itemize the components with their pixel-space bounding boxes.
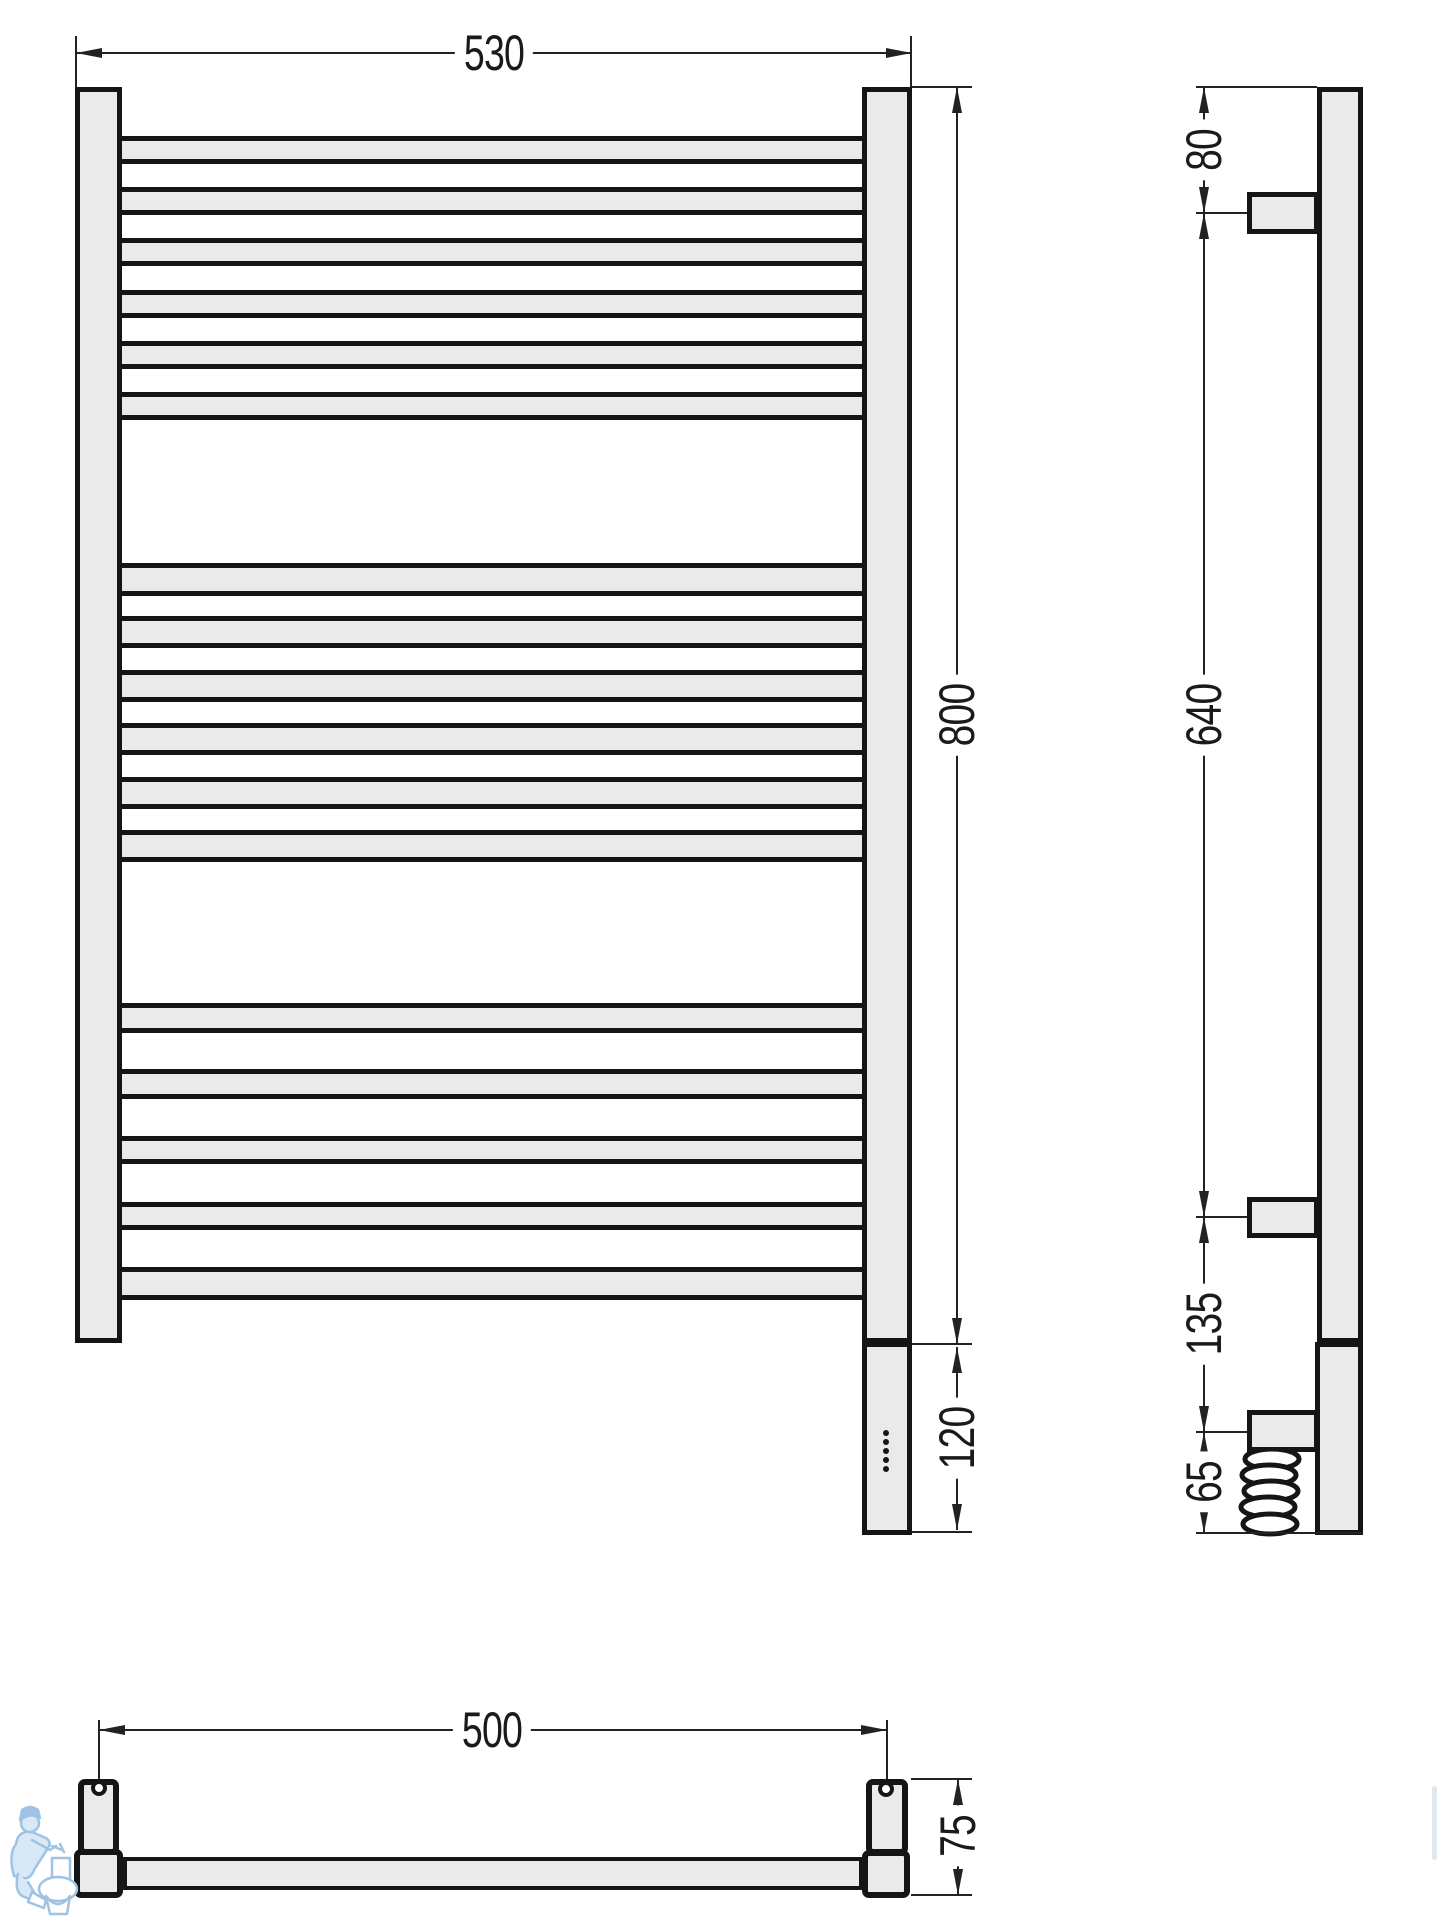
arrowhead-down bbox=[953, 1869, 963, 1895]
arrowhead-left bbox=[76, 48, 102, 58]
dim-mount-depth: 75 bbox=[932, 1806, 984, 1867]
ext-line bbox=[1196, 1532, 1363, 1534]
arrowhead-down bbox=[952, 1504, 962, 1530]
arrowhead-up bbox=[1199, 1217, 1209, 1243]
side-wall-bracket-top bbox=[1247, 192, 1319, 234]
rung bbox=[116, 1267, 868, 1300]
rung bbox=[116, 136, 868, 164]
side-post bbox=[1317, 87, 1363, 1343]
rung bbox=[116, 187, 868, 215]
arrowhead-right bbox=[861, 1725, 887, 1735]
rung bbox=[116, 1069, 868, 1099]
arrowhead-down bbox=[1199, 187, 1209, 213]
arrowhead-down bbox=[952, 1318, 962, 1344]
dim-side-bracket-span: 640 bbox=[1178, 674, 1230, 755]
mount-hole-left bbox=[91, 1780, 107, 1796]
rung bbox=[116, 290, 868, 318]
dim-side-cable-to-bottom: 65 bbox=[1178, 1452, 1230, 1513]
rung bbox=[116, 341, 868, 369]
left-post bbox=[75, 87, 122, 1343]
dim-mount-span: 500 bbox=[453, 1704, 531, 1756]
arrowhead-down bbox=[1199, 1191, 1209, 1217]
dim-front-height: 800 bbox=[931, 674, 983, 755]
arrowhead-up bbox=[952, 87, 962, 113]
indicator-dot bbox=[883, 1466, 889, 1472]
rung bbox=[116, 830, 868, 862]
indicator-dot bbox=[883, 1439, 889, 1445]
rung bbox=[116, 1003, 868, 1033]
ext-line bbox=[912, 1343, 972, 1345]
arrowhead-up bbox=[952, 1347, 962, 1373]
indicator-dot bbox=[883, 1430, 889, 1436]
mounting-bar bbox=[123, 1857, 863, 1890]
indicator-dot bbox=[883, 1457, 889, 1463]
dim-front-width: 530 bbox=[455, 27, 533, 79]
spiral-cable bbox=[1232, 1448, 1308, 1540]
rung bbox=[116, 1136, 868, 1164]
arrowhead-up bbox=[953, 1779, 963, 1805]
side-wall-bracket-bottom bbox=[1247, 1197, 1319, 1238]
arrowhead-up bbox=[1199, 87, 1209, 113]
cable-entry-box bbox=[1247, 1410, 1319, 1452]
rung bbox=[116, 1202, 868, 1230]
indicator-dot bbox=[883, 1448, 889, 1454]
arrowhead-left bbox=[99, 1725, 125, 1735]
mount-hole-right bbox=[878, 1781, 894, 1797]
arrowhead-up bbox=[1199, 213, 1209, 239]
ext-line bbox=[912, 86, 972, 88]
rung bbox=[116, 392, 868, 420]
plumber-watermark bbox=[6, 1796, 86, 1918]
mount-base-right bbox=[862, 1850, 910, 1898]
side-heater-module bbox=[1315, 1342, 1363, 1535]
dim-side-bracket-to-cable: 135 bbox=[1178, 1283, 1230, 1364]
ext-line bbox=[75, 36, 77, 87]
dim-side-top-offset: 80 bbox=[1178, 120, 1230, 181]
rung bbox=[116, 777, 868, 809]
rung bbox=[116, 238, 868, 266]
ext-line bbox=[912, 1531, 972, 1533]
edge-watermark bbox=[1432, 1786, 1437, 1860]
arrowhead-right bbox=[886, 48, 912, 58]
rung bbox=[116, 670, 868, 702]
dim-heater-height: 120 bbox=[931, 1397, 983, 1478]
ext-line bbox=[910, 36, 912, 87]
arrowhead-down bbox=[1199, 1406, 1209, 1432]
right-post bbox=[862, 87, 912, 1343]
rung bbox=[116, 616, 868, 648]
rung bbox=[116, 563, 868, 596]
drawing-canvas: 530 800 120 80 640 135 65 500 75 bbox=[0, 0, 1440, 1920]
ext-line bbox=[1196, 86, 1317, 88]
rung bbox=[116, 723, 868, 755]
